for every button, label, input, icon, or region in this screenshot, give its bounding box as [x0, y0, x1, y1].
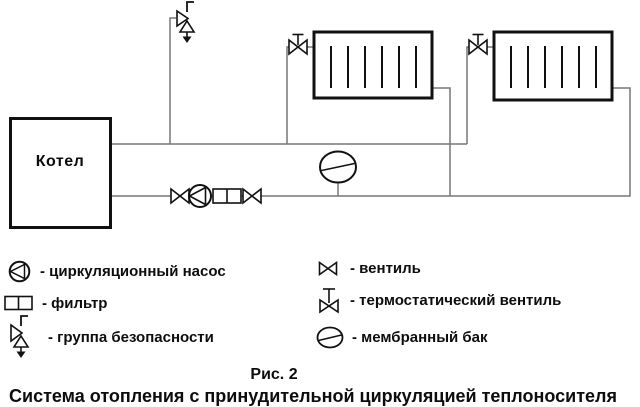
- figure-title: Система отопления с принудительной цирку…: [0, 386, 626, 407]
- legend-item-valve: - вентиль: [318, 256, 421, 280]
- filter-icon: [213, 189, 241, 203]
- legend-label: - термостатический вентиль: [350, 292, 561, 309]
- membrane-tank-icon: [320, 152, 356, 183]
- legend-label: - вентиль: [350, 260, 421, 277]
- legend-label: - фильтр: [42, 295, 107, 312]
- legend-label: - группа безопасности: [48, 329, 214, 346]
- radiator-2: [494, 32, 612, 100]
- return-pipe: [111, 88, 630, 196]
- radiator2-supply-riser: [467, 47, 470, 144]
- legend-label: - циркуляционный насос: [40, 263, 226, 280]
- radiator1-return-pipe: [433, 88, 450, 196]
- safety-group-icon: [177, 2, 194, 43]
- legend-item-filter: - фильтр: [4, 291, 107, 315]
- thermostatic-valve-icon: [318, 287, 340, 314]
- valve-icon: [318, 261, 338, 276]
- heating-system-figure: Котел - циркуляционный насос - фильтр - …: [0, 0, 640, 407]
- thermostatic-valve-2-icon: [469, 35, 487, 55]
- radiator1-supply-riser: [287, 47, 290, 144]
- safety-group-riser: [170, 18, 176, 144]
- legend-label: - мембранный бак: [352, 329, 488, 346]
- thermostatic-valve-1-icon: [289, 35, 307, 55]
- figure-number: Рис. 2: [0, 366, 548, 384]
- boiler-label: Котел: [10, 117, 110, 207]
- valve-icon: [243, 189, 261, 203]
- pump-icon: [189, 185, 211, 207]
- safety-group-icon: [8, 314, 34, 360]
- legend-item-membrane-tank: - мембранный бак: [316, 324, 488, 350]
- legend-item-pump: - циркуляционный насос: [6, 259, 226, 283]
- legend-item-thermostatic-valve: - термостатический вентиль: [318, 286, 561, 314]
- radiator-1: [314, 32, 432, 98]
- membrane-tank-icon: [316, 326, 344, 349]
- valve-icon: [171, 189, 189, 203]
- filter-icon: [4, 295, 34, 311]
- legend-item-safety-group: - группа безопасности: [8, 314, 214, 360]
- pump-icon: [6, 260, 34, 283]
